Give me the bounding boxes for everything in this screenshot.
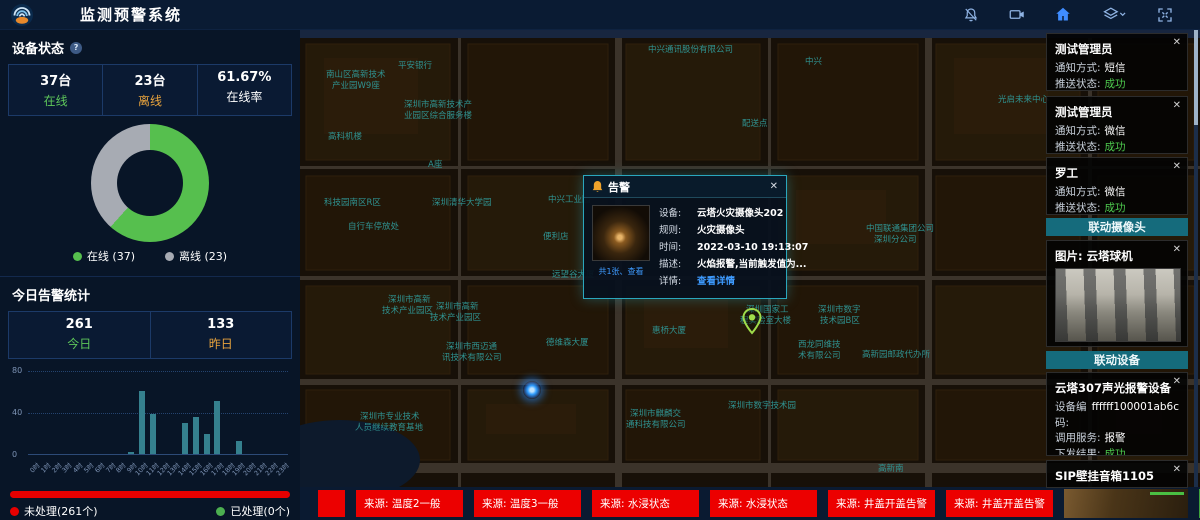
legend-online[interactable]: 在线 (37) bbox=[73, 248, 135, 264]
status-label: 推送状态: bbox=[1055, 140, 1101, 155]
home-icon[interactable] bbox=[1054, 6, 1072, 24]
ticker-item[interactable]: 来源: 水浸状态 bbox=[710, 490, 817, 517]
progress-legend: 未处理(261个) 已处理(0个) bbox=[10, 503, 290, 519]
close-icon[interactable]: ✕ bbox=[1173, 161, 1181, 172]
time-field-value: 2022-03-10 19:13:07 bbox=[697, 239, 808, 256]
description-field-value: 火焰报警,当前触发值为... bbox=[697, 256, 806, 273]
method-label: 通知方式: bbox=[1055, 61, 1101, 77]
svg-text:中国联通集团公司: 中国联通集团公司 bbox=[866, 223, 934, 234]
svg-text:高新南: 高新南 bbox=[878, 463, 904, 474]
alert-popup-title: 告警 bbox=[608, 179, 630, 195]
svg-text:深圳市专业技术: 深圳市专业技术 bbox=[360, 411, 420, 422]
svg-text:产业园W9座: 产业园W9座 bbox=[332, 80, 380, 91]
video-camera-icon[interactable] bbox=[1008, 6, 1026, 24]
description-field-label: 描述: bbox=[659, 256, 691, 273]
close-icon[interactable]: ✕ bbox=[1173, 464, 1181, 475]
offline-count: 23台 bbox=[103, 70, 196, 89]
svg-text:自行车停放处: 自行车停放处 bbox=[348, 221, 400, 232]
device-status-section-title: 设备状态 ? bbox=[0, 30, 300, 61]
method-label: 通知方式: bbox=[1055, 124, 1101, 140]
svg-text:技术园B区: 技术园B区 bbox=[820, 315, 860, 326]
close-icon[interactable]: ✕ bbox=[1173, 100, 1181, 111]
online-rate: 61.67% bbox=[198, 70, 291, 85]
svg-text:德维森大厦: 德维森大厦 bbox=[546, 337, 589, 348]
ticker-item[interactable]: 来源: 温度3一般 bbox=[474, 490, 581, 517]
result-label: 下发结果: bbox=[1055, 447, 1101, 457]
svg-text:通科技有限公司: 通科技有限公司 bbox=[626, 419, 686, 430]
bar bbox=[139, 391, 145, 454]
device-card-title: 云塔307声光报警设备 bbox=[1055, 380, 1179, 396]
field-rule: 规则: 火灾摄像头 bbox=[659, 222, 808, 239]
service-label: 调用服务: bbox=[1055, 431, 1101, 447]
legend-offline[interactable]: 离线 (23) bbox=[165, 248, 227, 264]
svg-text:惠桥大厦: 惠桥大厦 bbox=[652, 325, 687, 336]
header: 监测预警系统 bbox=[0, 0, 1200, 30]
xtick: 4时 bbox=[71, 457, 82, 483]
hourly-bar-chart: 80 40 0 0时1时2时3时4时5时6时7时8时9时10时11时12时13时… bbox=[10, 365, 290, 483]
ticker-item[interactable]: 来源: 井盖开盖告警 bbox=[828, 490, 935, 517]
xtick: 6时 bbox=[93, 457, 104, 483]
svg-text:讯技术有限公司: 讯技术有限公司 bbox=[442, 352, 502, 363]
linked-camera-header[interactable]: 联动摄像头 bbox=[1046, 218, 1188, 236]
svg-text:业园区综合服务楼: 业园区综合服务楼 bbox=[404, 110, 473, 121]
xtick: 0时 bbox=[28, 457, 39, 483]
svg-text:技术产业园区: 技术产业园区 bbox=[430, 312, 482, 323]
device-field-value: 云塔火灾摄像头202 bbox=[697, 205, 783, 222]
ytick-0: 0 bbox=[12, 450, 17, 459]
method-value: 短信 bbox=[1105, 61, 1126, 77]
popup-close-icon[interactable]: ✕ bbox=[770, 181, 778, 192]
bar bbox=[193, 417, 199, 454]
snapshot-view-link[interactable]: 共1张、查看 bbox=[592, 266, 650, 277]
svg-text:南山区高新技术: 南山区高新技术 bbox=[326, 69, 386, 80]
ytick-40: 40 bbox=[12, 408, 22, 417]
donut-hole bbox=[117, 150, 183, 216]
xtick: 5时 bbox=[82, 457, 93, 483]
svg-text:深圳市高新: 深圳市高新 bbox=[388, 294, 431, 305]
download-link[interactable]: 下载 bbox=[1055, 346, 1179, 347]
svg-text:西龙同维技: 西龙同维技 bbox=[798, 339, 841, 350]
legend-offline-dot bbox=[165, 252, 174, 261]
svg-text:高科机楼: 高科机楼 bbox=[328, 131, 363, 142]
stat-today: 261 今日 bbox=[9, 312, 150, 358]
unhandled-label: 未处理(261个) bbox=[24, 503, 98, 519]
camera-snapshot-image[interactable] bbox=[1055, 268, 1181, 342]
alert-popup-body: 共1张、查看 设备: 云塔火灾摄像头202 规则: 火灾摄像头 时间: 2022… bbox=[584, 198, 786, 290]
device-card-title: SIP壁挂音箱1105 bbox=[1055, 468, 1179, 484]
app-root: 监测预警系统 设备状态 ? 37台 bbox=[0, 0, 1200, 520]
map-marker-pin[interactable] bbox=[741, 307, 763, 335]
field-description: 描述: 火焰报警,当前触发值为... bbox=[659, 256, 808, 273]
left-sidebar: 设备状态 ? 37台 在线 23台 离线 61.67% 在线率 在线 (37) bbox=[0, 30, 300, 520]
yesterday-count: 133 bbox=[151, 317, 292, 332]
xtick: 8时 bbox=[115, 457, 126, 483]
fire-snapshot-image[interactable] bbox=[592, 205, 650, 261]
stat-offline: 23台 离线 bbox=[102, 65, 196, 115]
notify-card-title: 测试管理员 bbox=[1055, 41, 1179, 57]
today-alerts-section-title: 今日告警统计 bbox=[0, 276, 300, 308]
result-value: 成功 bbox=[1105, 447, 1126, 457]
legend-unhandled: 未处理(261个) bbox=[10, 503, 98, 519]
scrollbar[interactable] bbox=[1194, 30, 1198, 487]
status-value: 成功 bbox=[1105, 201, 1126, 216]
xtick: 23时 bbox=[277, 457, 288, 483]
svg-text:技术产业园区: 技术产业园区 bbox=[382, 305, 434, 316]
method-label: 通知方式: bbox=[1055, 185, 1101, 201]
alert-ticker: 来源: 温度2一般来源: 温度3一般来源: 水浸状态来源: 水浸状态来源: 井盖… bbox=[300, 487, 1200, 520]
device-status-title: 设备状态 bbox=[12, 38, 64, 57]
notify-card-title: 测试管理员 bbox=[1055, 104, 1179, 120]
bar bbox=[214, 401, 220, 455]
status-value: 成功 bbox=[1105, 77, 1126, 92]
device-field-label: 设备: bbox=[659, 205, 691, 222]
xtick: 7时 bbox=[104, 457, 115, 483]
stat-yesterday: 133 昨日 bbox=[150, 312, 292, 358]
device-code-label: 设备编码: bbox=[1055, 400, 1088, 431]
time-field-label: 时间: bbox=[659, 239, 691, 256]
unhandled-dot bbox=[10, 507, 19, 516]
bar bbox=[236, 441, 242, 454]
layers-icon[interactable] bbox=[1100, 6, 1128, 24]
svg-text:深圳清华大学园: 深圳清华大学园 bbox=[432, 197, 492, 208]
ticker-item[interactable]: 来源: 温度2一般 bbox=[356, 490, 463, 517]
xtick: 2时 bbox=[50, 457, 61, 483]
bar bbox=[150, 414, 156, 454]
bar bbox=[128, 452, 134, 454]
svg-text:光启未来中心: 光启未来中心 bbox=[998, 94, 1050, 105]
stat-online: 37台 在线 bbox=[9, 65, 102, 115]
legend-online-dot bbox=[73, 252, 82, 261]
svg-text:术有限公司: 术有限公司 bbox=[798, 350, 841, 361]
today-label: 今日 bbox=[9, 335, 150, 352]
notify-card: ✕ 测试管理员 通知方式:微信 推送状态:成功 bbox=[1046, 96, 1188, 154]
notify-card: ✕ 罗工 通知方式:微信 推送状态:成功 bbox=[1046, 157, 1188, 215]
svg-text:便利店: 便利店 bbox=[543, 231, 569, 242]
notify-card-title: 罗工 bbox=[1055, 165, 1179, 181]
info-icon[interactable]: ? bbox=[70, 42, 82, 54]
svg-text:深圳市数字: 深圳市数字 bbox=[818, 304, 861, 315]
close-icon[interactable]: ✕ bbox=[1173, 376, 1181, 387]
alert-popup: 告警 ✕ 共1张、查看 设备: 云塔火灾摄像头202 规则: 火灾摄像头 bbox=[583, 175, 787, 299]
svg-text:深圳分公司: 深圳分公司 bbox=[874, 234, 917, 245]
page-title: 监测预警系统 bbox=[80, 4, 182, 25]
field-time: 时间: 2022-03-10 19:13:07 bbox=[659, 239, 808, 256]
svg-text:深圳市高新技术产: 深圳市高新技术产 bbox=[404, 99, 472, 110]
field-detail: 详情: 查看详情 bbox=[659, 273, 808, 290]
notify-card: ✕ 测试管理员 通知方式:短信 推送状态:成功 bbox=[1046, 33, 1188, 91]
online-rate-label: 在线率 bbox=[198, 88, 291, 105]
scrollbar-thumb[interactable] bbox=[1194, 30, 1198, 125]
svg-text:深圳市数字技术园: 深圳市数字技术园 bbox=[728, 400, 796, 411]
status-value: 成功 bbox=[1105, 140, 1126, 155]
today-count: 261 bbox=[9, 317, 150, 332]
bar-xaxis: 0时1时2时3时4时5时6时7时8时9时10时11时12时13时14时15时16… bbox=[28, 457, 288, 483]
svg-text:深圳市高新: 深圳市高新 bbox=[436, 301, 479, 312]
today-alerts-stats: 261 今日 133 昨日 bbox=[8, 311, 292, 359]
service-value: 报警 bbox=[1105, 431, 1126, 447]
bar-plot bbox=[28, 371, 288, 455]
method-value: 微信 bbox=[1105, 124, 1126, 140]
donut-legend: 在线 (37) 离线 (23) bbox=[0, 248, 300, 264]
handled-label: 已处理(0个) bbox=[230, 503, 290, 519]
legend-offline-label: 离线 (23) bbox=[179, 248, 227, 264]
svg-text:人员继续教育基地: 人员继续教育基地 bbox=[355, 422, 424, 433]
detail-field-label: 详情: bbox=[659, 273, 691, 290]
device-status-stats: 37台 在线 23台 离线 61.67% 在线率 bbox=[8, 64, 292, 116]
svg-text:高新园邮政代办所: 高新园邮政代办所 bbox=[862, 349, 931, 360]
svg-text:A座: A座 bbox=[428, 159, 443, 170]
camera-card: ✕ 图片: 云塔球机 下载 bbox=[1046, 240, 1188, 347]
device-code-value: ffffff100001ab6c bbox=[1092, 400, 1179, 431]
bar bbox=[204, 434, 210, 454]
field-device: 设备: 云塔火灾摄像头202 bbox=[659, 205, 808, 222]
offline-label: 离线 bbox=[103, 92, 196, 109]
stat-online-rate: 61.67% 在线率 bbox=[197, 65, 291, 115]
rule-field-label: 规则: bbox=[659, 222, 691, 239]
svg-text:平安银行: 平安银行 bbox=[398, 60, 433, 71]
fullscreen-icon[interactable] bbox=[1156, 6, 1174, 24]
alert-popup-header: 告警 ✕ bbox=[584, 176, 786, 198]
linked-device-header[interactable]: 联动设备 bbox=[1046, 351, 1188, 369]
camera-image-label: 图片: 云塔球机 bbox=[1055, 248, 1179, 264]
online-count: 37台 bbox=[9, 70, 102, 89]
handled-dot bbox=[216, 507, 225, 516]
xtick: 1时 bbox=[39, 457, 50, 483]
ticker-item[interactable]: 来源: 井盖开盖告警 bbox=[946, 490, 1053, 517]
svg-text:深圳市麒麟交: 深圳市麒麟交 bbox=[630, 408, 682, 419]
device-card: ✕ 云塔307声光报警设备 设备编码:ffffff100001ab6c 调用服务… bbox=[1046, 372, 1188, 456]
svg-text:科技园南区R区: 科技园南区R区 bbox=[324, 197, 381, 208]
yesterday-label: 昨日 bbox=[151, 335, 292, 352]
unhandled-progress-bar bbox=[10, 491, 290, 498]
ticker-item-partial[interactable] bbox=[318, 490, 345, 517]
status-label: 推送状态: bbox=[1055, 77, 1101, 92]
close-icon[interactable]: ✕ bbox=[1173, 37, 1181, 48]
svg-text:配送点: 配送点 bbox=[742, 118, 768, 129]
svg-text:中兴通讯股份有限公司: 中兴通讯股份有限公司 bbox=[648, 44, 733, 55]
rule-field-value: 火灾摄像头 bbox=[697, 222, 745, 239]
app-logo-icon bbox=[10, 3, 34, 27]
map-marker-dot[interactable] bbox=[523, 381, 541, 399]
ticker-video-thumbnail[interactable] bbox=[1064, 489, 1188, 518]
close-icon[interactable]: ✕ bbox=[1173, 244, 1181, 255]
notification-off-icon[interactable] bbox=[962, 6, 980, 24]
ytick-80: 80 bbox=[12, 366, 22, 375]
device-donut-chart bbox=[91, 124, 209, 242]
online-label: 在线 bbox=[9, 92, 102, 109]
device-card: ✕ SIP壁挂音箱1105 设备编码:1105 bbox=[1046, 460, 1188, 488]
ticker-item[interactable]: 来源: 水浸状态 bbox=[592, 490, 699, 517]
svg-text:深圳市西迈通: 深圳市西迈通 bbox=[446, 341, 498, 352]
ticker-items: 来源: 温度2一般来源: 温度3一般来源: 水浸状态来源: 水浸状态来源: 井盖… bbox=[356, 490, 1053, 517]
view-detail-link[interactable]: 查看详情 bbox=[697, 273, 735, 290]
method-value: 微信 bbox=[1105, 185, 1126, 201]
xtick: 3时 bbox=[60, 457, 71, 483]
svg-text:中兴: 中兴 bbox=[805, 56, 823, 67]
bar bbox=[182, 423, 188, 455]
legend-online-label: 在线 (37) bbox=[87, 248, 135, 264]
alarm-bell-icon bbox=[592, 180, 603, 193]
today-alerts-title: 今日告警统计 bbox=[12, 285, 90, 304]
status-label: 推送状态: bbox=[1055, 201, 1101, 216]
legend-handled: 已处理(0个) bbox=[216, 503, 290, 519]
